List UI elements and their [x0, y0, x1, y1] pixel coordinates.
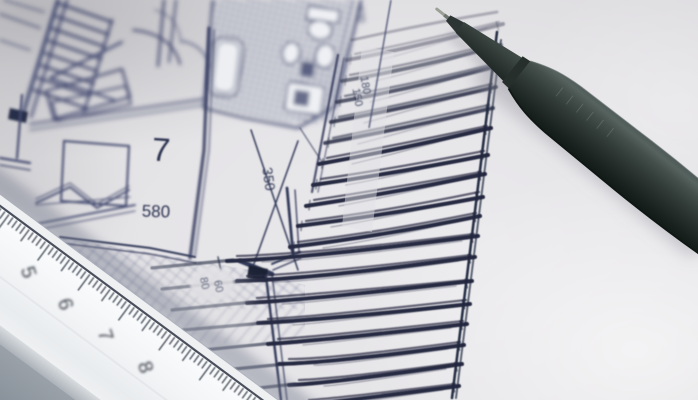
- svg-text:350: 350: [259, 166, 278, 192]
- svg-text:400: 400: [353, 4, 367, 24]
- svg-text:580: 580: [141, 202, 170, 222]
- svg-text:7: 7: [151, 130, 172, 168]
